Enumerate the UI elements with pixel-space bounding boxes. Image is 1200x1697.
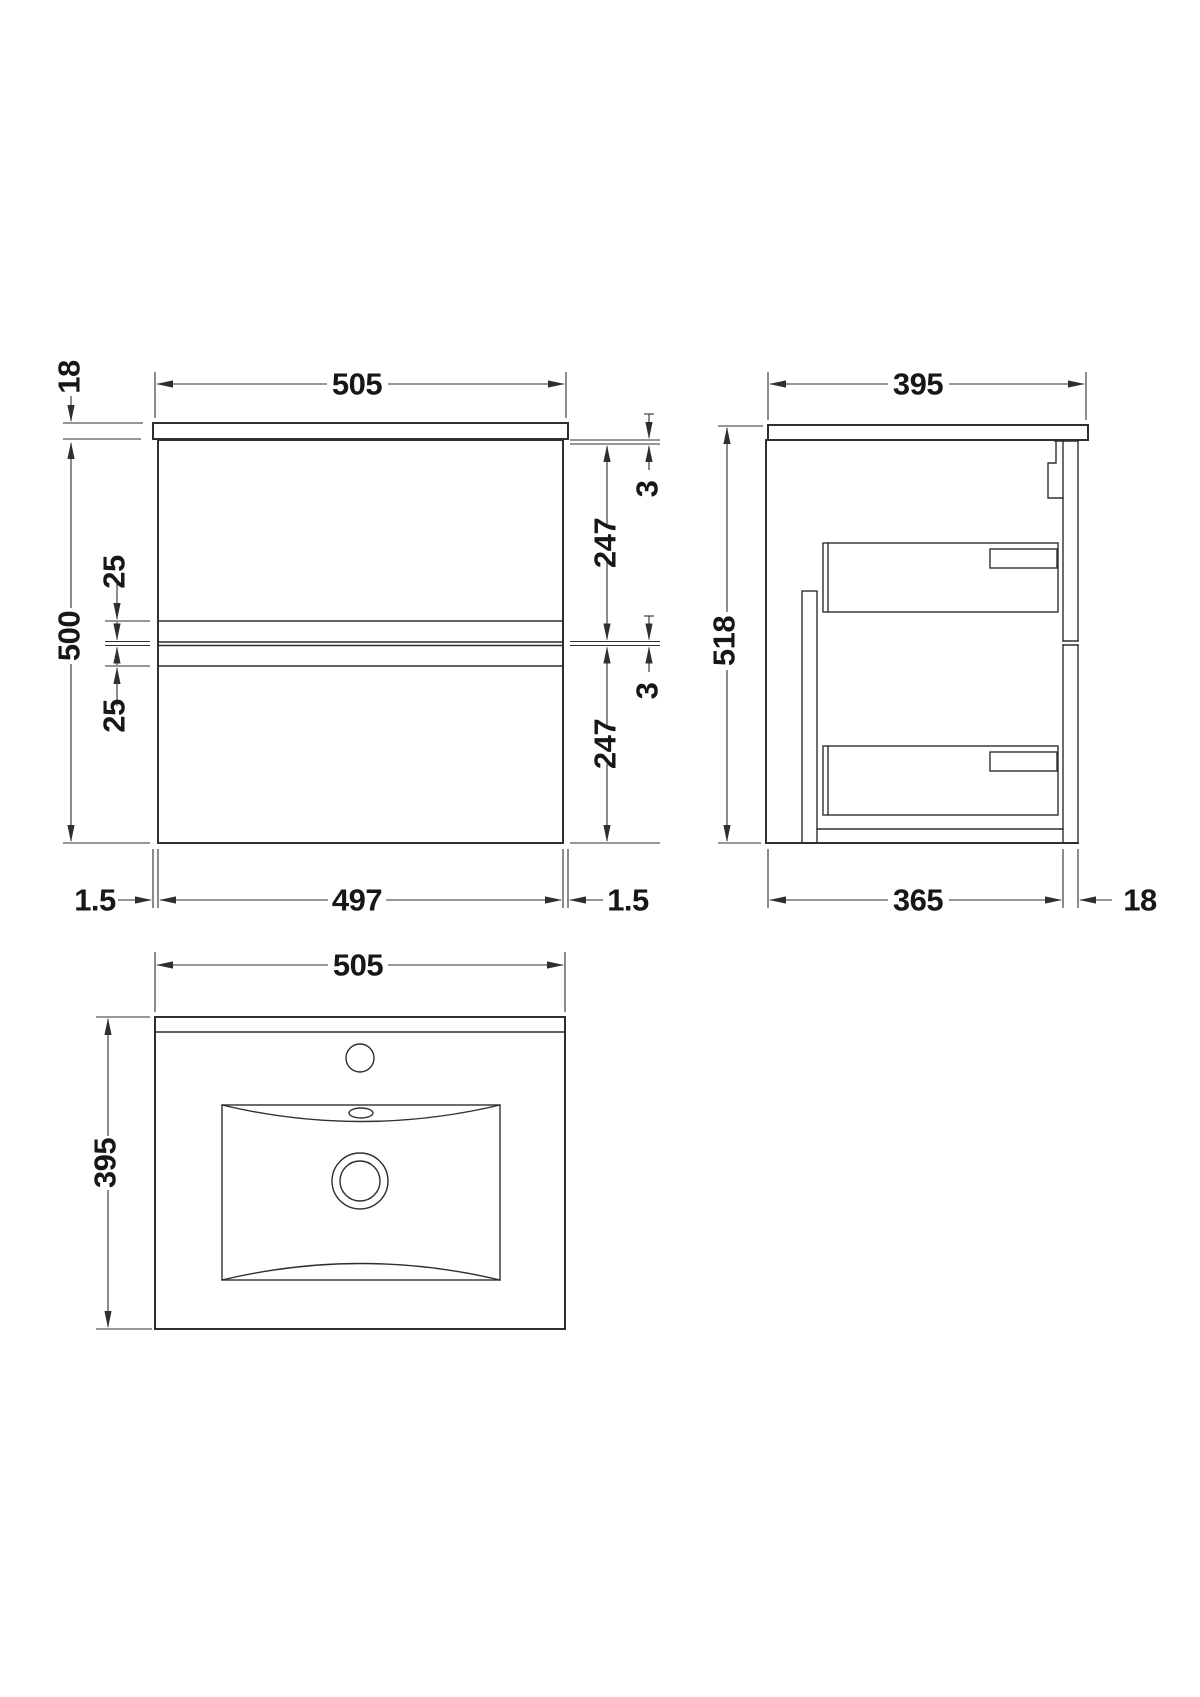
dim-label-internal-depth: 365	[893, 883, 943, 918]
dim-overall-height: 518	[707, 426, 764, 843]
dim-label-carcass-width: 497	[332, 883, 382, 918]
dim-label-plan-depth: 395	[88, 1138, 123, 1188]
dim-label-drawer-upper: 247	[588, 518, 623, 568]
dim-front-bottom-row: 1.5 497 1.5	[74, 849, 649, 918]
waste-hole-inner	[340, 1161, 380, 1201]
dim-label-front-panel-thickness: 18	[1123, 883, 1157, 918]
dim-drawer-upper: 247	[588, 446, 623, 640]
basin-bowl-back-curve	[222, 1264, 500, 1281]
drawer-box-outline	[823, 746, 1058, 815]
dim-label-plan-width: 505	[333, 948, 383, 983]
drawer-box-slot	[990, 752, 1057, 771]
dim-label-groove-upper: 25	[97, 555, 132, 589]
dim-grooves: 25 25	[97, 555, 151, 733]
technical-drawing-page: 505 18 500 25 25	[0, 0, 1200, 1697]
tap-hole	[346, 1044, 374, 1072]
dim-label-gap-middle: 3	[630, 682, 665, 699]
overflow-hole	[349, 1108, 373, 1118]
dim-side-bottom-row: 365 18	[768, 849, 1157, 918]
dim-label-overall-height: 518	[707, 616, 742, 666]
front-worktop	[153, 423, 568, 439]
side-back-rail	[802, 591, 817, 843]
dim-cabinet-height: 500	[52, 443, 151, 843]
dim-plan-depth: 395	[88, 1017, 153, 1329]
dim-side-depth: 395	[768, 367, 1086, 421]
dim-label-overhang-left: 1.5	[74, 883, 116, 918]
dim-gap-top: 3	[630, 414, 665, 497]
vanity-unit-dimension-drawing: 505 18 500 25 25	[0, 0, 1200, 1697]
dim-label-overhang-right: 1.5	[607, 883, 649, 918]
dim-drawer-lower: 247	[588, 648, 623, 842]
front-view: 505 18 500 25 25	[52, 360, 665, 917]
dim-label-gap-top: 3	[630, 480, 665, 497]
dim-label-drawer-lower: 247	[588, 719, 623, 769]
side-lower-drawer-box	[823, 746, 1058, 815]
dim-label-cabinet-height: 500	[52, 611, 87, 661]
dim-label-side-depth: 395	[893, 367, 943, 402]
dim-plan-width: 505	[155, 948, 565, 1013]
dim-gap-middle: 3	[630, 616, 665, 699]
drawer-box-outline	[823, 543, 1058, 612]
front-right-extensions	[570, 440, 660, 843]
basin-bowl-rim	[222, 1105, 500, 1280]
side-view: 395 518 365 18	[707, 367, 1157, 918]
dim-worktop-thickness: 18	[52, 360, 144, 439]
plan-view: 505 395	[88, 948, 566, 1330]
dim-front-width: 505	[155, 367, 566, 419]
drawer-box-slot	[990, 549, 1057, 568]
dim-label-groove-lower: 25	[97, 699, 132, 733]
side-worktop	[768, 425, 1088, 440]
side-upper-drawer-box	[823, 543, 1058, 612]
side-handle-recess-profile	[1048, 441, 1063, 498]
dim-label-worktop-thickness: 18	[52, 360, 87, 394]
dim-label-front-width: 505	[332, 367, 382, 402]
basin-outline	[155, 1017, 565, 1329]
